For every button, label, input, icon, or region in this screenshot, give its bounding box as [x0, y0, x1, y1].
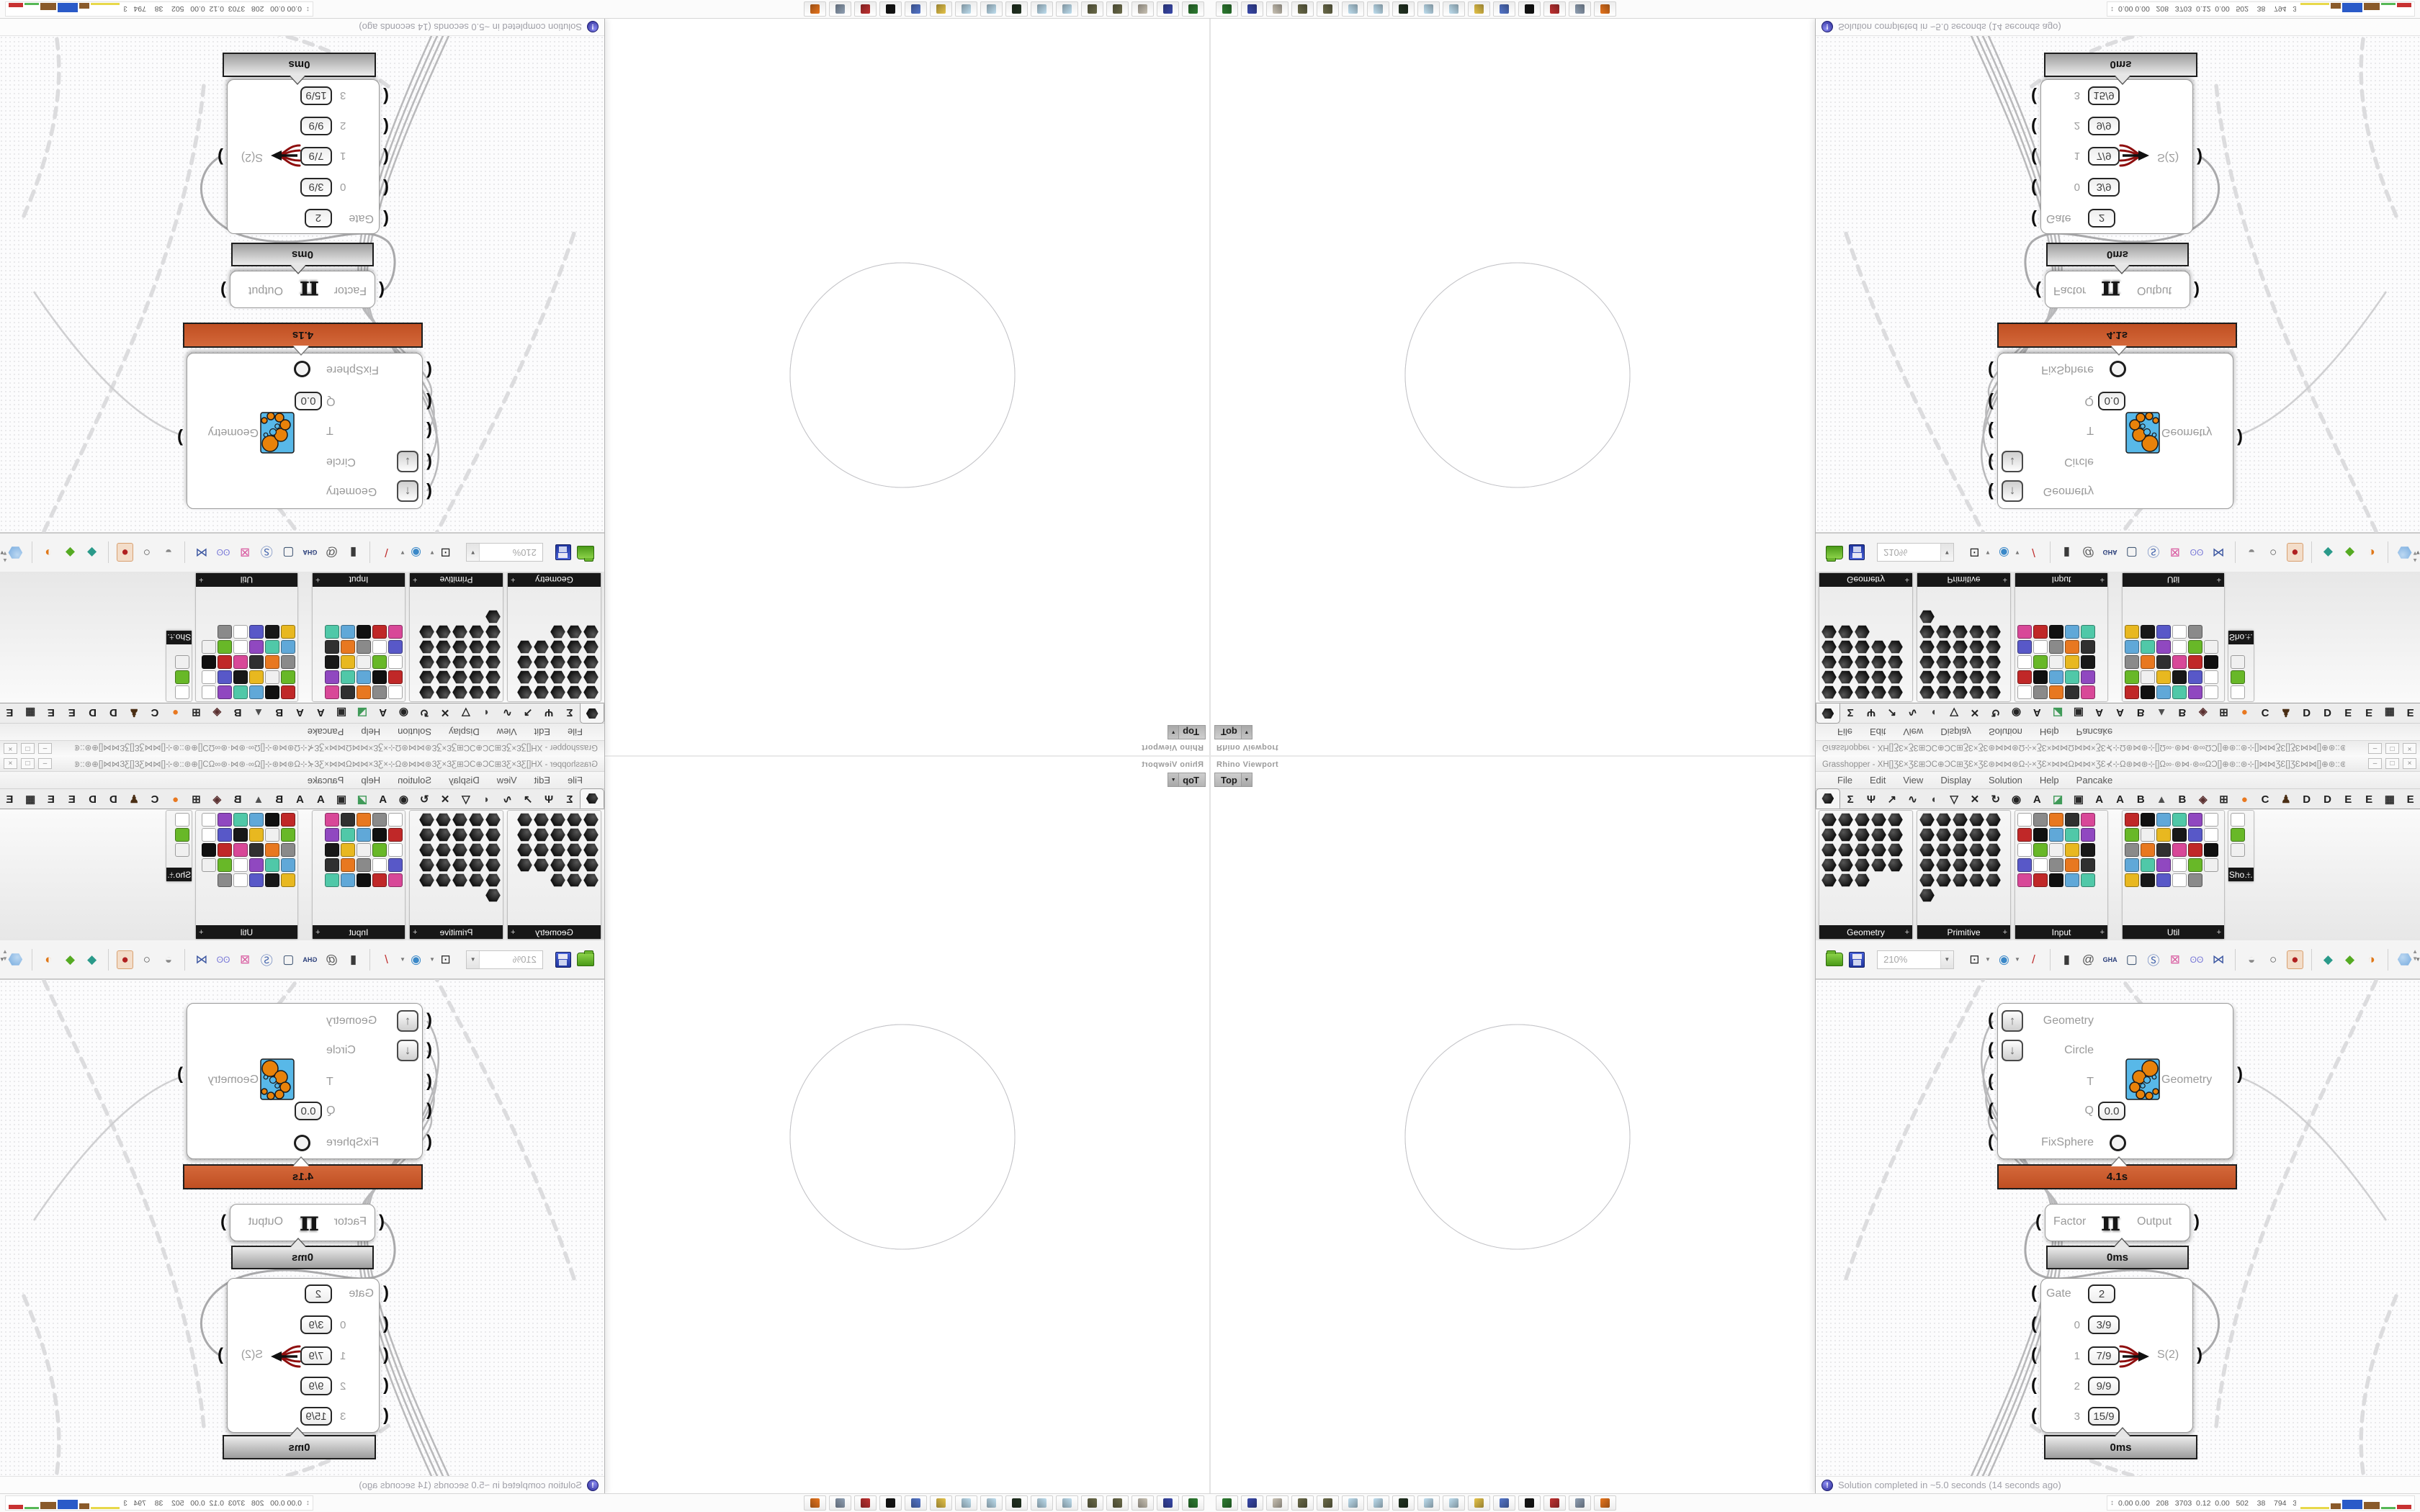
component-icon[interactable] [357, 655, 371, 669]
component-icon[interactable] [1888, 640, 1903, 654]
component-icon[interactable] [534, 685, 549, 699]
annotate-icon[interactable]: @ [323, 950, 340, 969]
search-icon[interactable]: Ⓢ [2145, 950, 2161, 969]
tab-plugin-b2[interactable]: B [228, 703, 248, 722]
menu-item-file[interactable]: File [568, 726, 583, 737]
tab-plugin-a3[interactable]: A [2110, 790, 2130, 809]
notepad-tile-3[interactable] [980, 1495, 1003, 1511]
component-icon[interactable] [372, 873, 387, 887]
toolbar-scroll-arrows[interactable]: ▲▼ [2, 550, 8, 563]
tab-plugin-b2[interactable]: B [2172, 790, 2193, 809]
tab-plugin-c[interactable]: C [145, 790, 166, 809]
flatten-down-button[interactable]: ↓ [2002, 1040, 2023, 1061]
component-icon[interactable] [1986, 858, 2001, 872]
component-icon[interactable] [485, 813, 501, 827]
component-icon[interactable] [2033, 813, 2048, 827]
gear-tile[interactable] [854, 1495, 877, 1511]
component-icon[interactable] [357, 858, 371, 872]
component-icon[interactable] [2017, 873, 2032, 887]
menu-item-file[interactable]: File [1837, 775, 1852, 786]
tab-plugin-e2[interactable]: E [2359, 703, 2380, 722]
tab-display[interactable]: ◉ [393, 703, 414, 722]
component-icon[interactable] [202, 813, 216, 827]
component-icon[interactable] [1871, 843, 1886, 857]
expand-plus-icon[interactable]: + [315, 576, 320, 585]
projector-icon[interactable]: ▮ [345, 950, 362, 969]
gate-value-field[interactable]: 3/9 [2088, 178, 2120, 197]
gate-value-field[interactable]: 3/9 [300, 1315, 332, 1334]
viewport-tab-top[interactable]: Top ▼ [1168, 725, 1206, 739]
tab-intersect[interactable]: ✕ [1965, 703, 1986, 722]
output-grip[interactable]: ) [2194, 1213, 2200, 1230]
component-icon[interactable] [341, 843, 355, 857]
tab-mesh[interactable]: ▽ [1944, 703, 1965, 722]
input-grip[interactable]: ( [2031, 1346, 2037, 1364]
tab-plugin-a3[interactable]: A [290, 790, 310, 809]
component-icon[interactable] [550, 685, 565, 699]
component-icon[interactable] [1821, 670, 1837, 684]
orb-tile-2[interactable] [1081, 1, 1103, 17]
tab-params[interactable] [1816, 703, 1840, 724]
component-icon[interactable] [341, 873, 355, 887]
component-icon[interactable] [1855, 655, 1870, 669]
cat-tile[interactable] [879, 1495, 902, 1511]
tab-params[interactable] [1816, 788, 1840, 809]
component-icon[interactable] [1888, 685, 1903, 699]
maximize-button[interactable]: □ [2385, 743, 2399, 754]
component-icon[interactable] [2081, 843, 2095, 857]
firefox-tile[interactable] [804, 1, 826, 17]
component-icon[interactable] [1969, 873, 1984, 887]
tab-plugin-d1[interactable]: D [103, 703, 124, 722]
component-icon[interactable] [1821, 625, 1837, 639]
cat-tile[interactable] [1518, 1, 1541, 17]
input-grip[interactable]: ( [383, 1407, 389, 1424]
pi-component[interactable]: ( Factor π Output ) [2045, 1204, 2190, 1241]
preview-eye-icon[interactable]: ◉ [408, 950, 424, 969]
annotate-icon[interactable]: @ [323, 544, 340, 562]
component-icon[interactable] [281, 685, 295, 699]
notepad-tile-4[interactable] [1443, 1495, 1465, 1511]
tab-plugin-eraser[interactable]: ◪ [2048, 790, 2069, 809]
tab-maths[interactable]: Σ [559, 703, 580, 722]
tab-plugin-e3[interactable]: E [0, 790, 20, 809]
menu-item-pancake[interactable]: Pancake [308, 775, 344, 786]
component-icon[interactable] [1821, 843, 1837, 857]
gate-value-field[interactable]: 9/9 [300, 1377, 332, 1395]
menu-item-file[interactable]: File [568, 775, 583, 786]
gear-tile[interactable] [854, 1, 877, 17]
component-icon[interactable] [218, 655, 232, 669]
component-icon[interactable] [485, 828, 501, 842]
calculator-tile[interactable] [829, 1, 851, 17]
wire-display-icon[interactable]: ⋈ [2210, 544, 2227, 562]
component-icon[interactable] [1986, 640, 2001, 654]
tab-transform[interactable]: ↻ [414, 703, 435, 722]
tab-curve[interactable]: ∿ [1902, 790, 1923, 809]
component-icon[interactable] [2033, 873, 2048, 887]
graft-up-button[interactable]: ↑ [397, 480, 418, 502]
component-icon[interactable] [534, 640, 549, 654]
orb-tile-1[interactable] [1291, 1, 1314, 17]
component-icon[interactable] [1953, 858, 1968, 872]
tab-plugin-e2[interactable]: E [2359, 790, 2380, 809]
notepad-tile-1[interactable] [1056, 1495, 1078, 1511]
component-icon[interactable] [1919, 625, 1935, 639]
component-icon[interactable] [281, 655, 295, 669]
component-icon[interactable] [517, 813, 532, 827]
component-icon[interactable] [1855, 670, 1870, 684]
notepad-tile-4[interactable] [1443, 1, 1465, 17]
component-icon[interactable] [1821, 813, 1837, 827]
stream-gate-component[interactable]: (Gate2(03/9(17/9(29/9(315/9 S(2) ) [2040, 79, 2193, 234]
flatten-down-button[interactable]: ↓ [2002, 451, 2023, 472]
component-icon[interactable] [583, 858, 599, 872]
component-icon[interactable] [469, 843, 484, 857]
open-file-icon[interactable] [1826, 950, 1843, 969]
component-icon[interactable] [175, 685, 189, 699]
component-icon[interactable] [1838, 843, 1853, 857]
chevron-down-icon[interactable]: ▼ [1940, 951, 1953, 968]
component-icon[interactable] [325, 670, 339, 684]
tab-plugin-a2[interactable]: A [310, 790, 331, 809]
component-icon[interactable] [550, 640, 565, 654]
gate-value-field[interactable]: 15/9 [300, 1407, 332, 1426]
component-icon[interactable] [1953, 873, 1968, 887]
gate-value-field[interactable]: 15/9 [300, 86, 332, 105]
package-icon[interactable]: ⊠ [237, 544, 254, 562]
tab-sets[interactable]: Ψ [539, 790, 560, 809]
save-file-icon[interactable] [1848, 544, 1865, 562]
console-tile[interactable] [1182, 1, 1204, 17]
tab-vector[interactable]: ↗ [1881, 703, 1902, 722]
menu-item-solution[interactable]: Solution [1989, 726, 2022, 737]
input-grip[interactable]: ( [2031, 148, 2037, 166]
component-icon[interactable] [2141, 813, 2155, 827]
tab-plugin-a1[interactable]: A [2027, 790, 2048, 809]
menu-item-solution[interactable]: Solution [398, 775, 431, 786]
output-grip[interactable]: ) [177, 1066, 183, 1083]
component-icon[interactable] [357, 813, 371, 827]
component-icon[interactable] [175, 655, 189, 669]
component-icon[interactable] [249, 813, 264, 827]
gate-value-field[interactable]: 3/9 [2088, 1315, 2120, 1334]
input-grip[interactable]: ( [2035, 1213, 2041, 1230]
component-icon[interactable] [436, 670, 451, 684]
tab-plugin-frame[interactable]: ▣ [2069, 790, 2089, 809]
component-icon[interactable] [567, 843, 582, 857]
viewport-tab-top[interactable]: Top ▼ [1168, 773, 1206, 787]
component-icon[interactable] [341, 640, 355, 654]
component-icon[interactable] [485, 625, 501, 639]
expand-plus-icon[interactable]: + [1905, 576, 1909, 585]
component-icon[interactable] [517, 828, 532, 842]
component-icon[interactable] [436, 625, 451, 639]
component-icon[interactable] [469, 828, 484, 842]
browser-window-icon[interactable]: ▢ [2123, 950, 2140, 969]
component-icon[interactable] [550, 670, 565, 684]
menu-item-view[interactable]: View [497, 726, 517, 737]
pin-teal-icon[interactable]: ◆ [2320, 950, 2336, 969]
browser-window-icon[interactable]: ▢ [280, 544, 297, 562]
output-grip[interactable]: ) [218, 1346, 223, 1364]
input-grip[interactable]: ( [1988, 393, 1994, 410]
tab-plugin-b1[interactable]: B [269, 703, 290, 722]
component-icon[interactable] [436, 655, 451, 669]
component-icon[interactable] [452, 640, 467, 654]
component-icon[interactable] [372, 858, 387, 872]
component-icon[interactable] [2049, 843, 2063, 857]
tab-plugin-a2[interactable]: A [2089, 703, 2110, 722]
component-icon[interactable] [2204, 670, 2218, 684]
component-icon[interactable] [2188, 625, 2202, 639]
component-icon[interactable] [1936, 655, 1951, 669]
component-icon[interactable] [1936, 843, 1951, 857]
component-icon[interactable] [485, 670, 501, 684]
graft-up-button[interactable]: ↑ [2002, 1010, 2023, 1032]
component-icon[interactable] [2141, 640, 2155, 654]
expand-plus-icon[interactable]: + [2003, 576, 2007, 585]
titlebar[interactable]: Grasshopper - XH[]ƷƐ×ƷƐ⊞ƆC⊕ƆC⊞ƷƐ×ƷƐ⊛⋈⋈⊛Ω… [0, 740, 604, 756]
component-icon[interactable] [534, 670, 549, 684]
component-icon[interactable] [1821, 685, 1837, 699]
expand-plus-icon[interactable]: + [2246, 870, 2251, 879]
component-icon[interactable] [1936, 813, 1951, 827]
hints-bulbs-icon[interactable]: ʘʘ [215, 950, 231, 969]
focus-extents-icon[interactable]: ⊡ [437, 950, 454, 969]
component-icon[interactable] [2033, 843, 2048, 857]
component-icon[interactable] [1969, 828, 1984, 842]
tab-plugin-a2[interactable]: A [310, 703, 331, 722]
component-icon[interactable] [2125, 828, 2139, 842]
component-icon[interactable] [469, 640, 484, 654]
component-icon[interactable] [249, 858, 264, 872]
component-icon[interactable] [1821, 655, 1837, 669]
input-value-field[interactable]: 0.0 [2098, 1102, 2125, 1120]
component-icon[interactable] [357, 640, 371, 654]
component-icon[interactable] [265, 685, 279, 699]
component-icon[interactable] [2141, 670, 2155, 684]
component-icon[interactable] [1838, 828, 1853, 842]
component-icon[interactable] [1953, 640, 1968, 654]
input-grip[interactable]: ( [2031, 1315, 2037, 1333]
component-icon[interactable] [1821, 828, 1837, 842]
input-grip[interactable]: ( [383, 88, 389, 105]
boolean-toggle[interactable] [294, 1135, 310, 1151]
component-icon[interactable] [2065, 625, 2079, 639]
chevron-down-icon[interactable]: ▼ [1985, 549, 1991, 556]
output-grip[interactable]: ) [220, 282, 226, 299]
component-icon[interactable] [485, 655, 501, 669]
component-icon[interactable] [233, 828, 248, 842]
component-icon[interactable] [1919, 858, 1935, 872]
rhino-viewport[interactable] [604, 788, 1209, 1494]
component-icon[interactable] [534, 858, 549, 872]
tab-curve[interactable]: ∿ [497, 790, 518, 809]
input-grip[interactable]: ( [426, 1012, 432, 1029]
component-icon[interactable] [2081, 873, 2095, 887]
component-icon[interactable] [388, 813, 403, 827]
notepad-tile-4[interactable] [955, 1, 977, 17]
calculator-tile[interactable] [1569, 1, 1591, 17]
component-icon[interactable] [281, 828, 295, 842]
gha-installer-icon[interactable]: GHA [2102, 544, 2118, 562]
component-icon[interactable] [1986, 625, 2001, 639]
gate-value-field[interactable]: 2 [2088, 209, 2115, 228]
tab-plugin-d2[interactable]: D [2317, 703, 2338, 722]
tab-plugin-e2[interactable]: E [41, 790, 62, 809]
component-icon[interactable] [2188, 685, 2202, 699]
component-icon[interactable] [388, 625, 403, 639]
preview-off-icon[interactable]: ◒ [160, 950, 176, 969]
component-icon[interactable] [2081, 828, 2095, 842]
component-icon[interactable] [2081, 670, 2095, 684]
component-icon[interactable] [469, 670, 484, 684]
fixsphere-component[interactable]: (↑Geometry(↓Circle(T(Q0.0(FixSphere Geom… [187, 353, 423, 509]
folder-tile[interactable] [930, 1, 952, 17]
gear-tile[interactable] [1543, 1, 1566, 17]
component-icon[interactable] [325, 873, 339, 887]
rhino-viewport[interactable] [604, 18, 1209, 724]
component-icon[interactable] [1919, 843, 1935, 857]
boolean-toggle[interactable] [294, 361, 310, 377]
preview-shaded-icon[interactable]: ● [2287, 950, 2303, 969]
component-icon[interactable] [233, 625, 248, 639]
component-icon[interactable] [249, 843, 264, 857]
component-icon[interactable] [281, 670, 295, 684]
chevron-down-icon[interactable]: ▼ [467, 951, 480, 968]
input-grip[interactable]: ( [383, 1315, 389, 1333]
component-icon[interactable] [218, 685, 232, 699]
save-file-icon[interactable] [1848, 950, 1865, 969]
close-button[interactable]: × [2403, 743, 2416, 754]
component-icon[interactable] [1969, 625, 1984, 639]
notepad-tile-3[interactable] [1417, 1495, 1440, 1511]
zoom-select[interactable]: 210%▼ [1877, 544, 1954, 562]
graft-up-button[interactable]: ↑ [397, 1010, 418, 1032]
component-icon[interactable] [281, 843, 295, 857]
tab-plugin-d1[interactable]: D [2296, 703, 2317, 722]
component-icon[interactable] [1855, 813, 1870, 827]
tab-intersect[interactable]: ✕ [435, 790, 456, 809]
menu-item-display[interactable]: Display [449, 775, 480, 786]
tab-plugin-frame[interactable]: ▣ [2069, 703, 2089, 722]
component-icon[interactable] [233, 655, 248, 669]
component-icon[interactable] [419, 625, 434, 639]
console-tile[interactable] [1216, 1495, 1238, 1511]
component-icon[interactable] [583, 873, 599, 887]
sketch-pen-icon[interactable]: / [378, 544, 395, 562]
component-icon[interactable] [357, 685, 371, 699]
input-grip[interactable]: ( [1988, 1133, 1994, 1151]
component-icon[interactable] [2231, 685, 2245, 699]
preview-eye-icon[interactable]: ◉ [1996, 544, 2012, 562]
wire-display-icon[interactable]: ⋈ [2210, 950, 2227, 969]
tab-plugin-grid[interactable]: ⊞ [186, 790, 207, 809]
tab-mesh[interactable]: ▽ [455, 790, 476, 809]
component-icon[interactable] [419, 873, 434, 887]
notepad-tile-1[interactable] [1056, 1, 1078, 17]
menu-item-display[interactable]: Display [1940, 775, 1971, 786]
component-icon[interactable] [218, 625, 232, 639]
input-grip[interactable]: ( [1988, 1102, 1994, 1119]
selection-hex-icon[interactable] [2396, 544, 2413, 562]
component-icon[interactable] [1855, 640, 1870, 654]
monitor-tile[interactable] [1493, 1495, 1515, 1511]
printer-tile[interactable] [1266, 1, 1289, 17]
menu-item-file[interactable]: File [1837, 726, 1852, 737]
preview-wire-icon[interactable]: ○ [2265, 544, 2282, 562]
component-icon[interactable] [218, 873, 232, 887]
component-icon[interactable] [1919, 655, 1935, 669]
gha-installer-icon[interactable]: GHA [302, 950, 318, 969]
input-value-field[interactable]: 0.0 [295, 1102, 322, 1120]
tab-plugin-c[interactable]: C [2255, 703, 2276, 722]
component-icon[interactable] [534, 843, 549, 857]
orb-tile-1[interactable] [1291, 1495, 1314, 1511]
component-icon[interactable] [218, 813, 232, 827]
tab-plugin-b1[interactable]: B [2130, 790, 2151, 809]
projector-icon[interactable]: ▮ [2058, 544, 2075, 562]
floppy64-tile[interactable] [1157, 1495, 1179, 1511]
component-icon[interactable] [2125, 873, 2139, 887]
component-icon[interactable] [2156, 828, 2171, 842]
component-icon[interactable] [550, 625, 565, 639]
boolean-toggle[interactable] [2110, 361, 2126, 377]
component-icon[interactable] [2065, 858, 2079, 872]
component-icon[interactable] [1919, 685, 1935, 699]
calculator-tile[interactable] [1569, 1495, 1591, 1511]
component-icon[interactable] [2141, 843, 2155, 857]
component-icon[interactable] [1821, 873, 1837, 887]
component-icon[interactable] [325, 813, 339, 827]
firefox-tile[interactable] [1594, 1495, 1616, 1511]
wire-display-icon[interactable]: ⋈ [193, 544, 210, 562]
chevron-down-icon[interactable]: ▼ [1168, 726, 1179, 739]
focus-extents-icon[interactable]: ⊡ [1966, 950, 1983, 969]
component-icon[interactable] [233, 813, 248, 827]
tab-plugin-d1[interactable]: D [2296, 790, 2317, 809]
component-icon[interactable] [1936, 685, 1951, 699]
component-icon[interactable] [419, 640, 434, 654]
component-icon[interactable] [265, 670, 279, 684]
component-icon[interactable] [341, 655, 355, 669]
component-icon[interactable] [550, 828, 565, 842]
component-icon[interactable] [1986, 655, 2001, 669]
gate-value-field[interactable]: 15/9 [2088, 1407, 2120, 1426]
component-icon[interactable] [2188, 640, 2202, 654]
component-icon[interactable] [1838, 685, 1853, 699]
tab-plugin-dots[interactable]: ▦ [20, 790, 41, 809]
input-grip[interactable]: ( [2031, 210, 2037, 228]
component-icon[interactable] [357, 873, 371, 887]
component-icon[interactable] [175, 828, 189, 842]
tab-plugin-a3[interactable]: A [290, 703, 310, 722]
component-icon[interactable] [2204, 685, 2218, 699]
component-icon[interactable] [2081, 858, 2095, 872]
component-icon[interactable] [2017, 655, 2032, 669]
input-grip[interactable]: ( [383, 1346, 389, 1364]
component-icon[interactable] [2188, 813, 2202, 827]
component-icon[interactable] [249, 640, 264, 654]
component-icon[interactable] [1953, 828, 1968, 842]
component-icon[interactable] [2081, 813, 2095, 827]
tab-plugin-grid[interactable]: ⊞ [2213, 703, 2234, 722]
component-icon[interactable] [2188, 873, 2202, 887]
component-icon[interactable] [265, 828, 279, 842]
tab-plugin-dot[interactable]: ● [165, 790, 186, 809]
component-icon[interactable] [325, 655, 339, 669]
